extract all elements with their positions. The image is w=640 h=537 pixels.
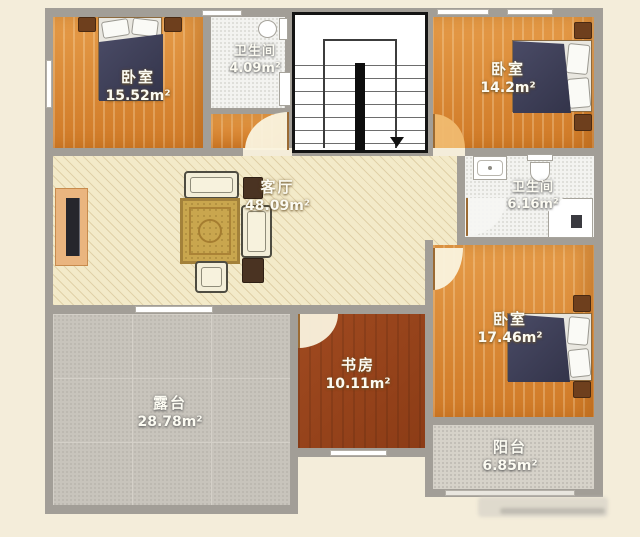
room-name: 客厅: [260, 178, 294, 198]
room-area: 14.2m²: [480, 80, 535, 98]
sink-drain: [488, 166, 492, 170]
window-top-bathroom: [202, 10, 242, 16]
room-name: 卧室: [121, 68, 155, 88]
label-balcony: 阳台 6.85m²: [462, 438, 558, 475]
pillow-icon: [565, 43, 590, 75]
nightstand-icon: [573, 295, 591, 312]
stair-center-bar: [355, 63, 365, 150]
room-area: 15.52m²: [105, 88, 170, 106]
toilet-bowl: [530, 162, 550, 182]
armchair-icon: [195, 261, 228, 293]
wall-study-left: [290, 314, 298, 505]
label-bathroom-top: 卫生间 4.09m²: [207, 44, 303, 77]
room-area: 17.46m²: [477, 330, 542, 348]
pillow-icon: [567, 316, 590, 346]
room-name: 阳台: [493, 438, 527, 458]
room-area: 4.09m²: [229, 61, 280, 77]
room-name: 书房: [341, 356, 375, 376]
tv-icon: [66, 198, 79, 256]
toilet-tank: [279, 18, 288, 40]
nightstand-icon: [574, 22, 592, 39]
wall-living-bottom: [45, 305, 433, 314]
window-top-bedroom-1: [437, 9, 489, 15]
toilet-bowl: [258, 20, 277, 38]
label-bedroom-top-left: 卧室 15.52m²: [78, 68, 198, 105]
label-bedroom-bottom-right: 卧室 17.46m²: [460, 310, 560, 347]
room-area: 48.09m²: [245, 198, 310, 216]
watermark: [478, 497, 608, 517]
toilet-icon: [258, 18, 288, 40]
room-name: 卫生间: [234, 44, 276, 61]
label-study: 书房 10.11m²: [308, 356, 408, 393]
watermark-text-blur: [500, 508, 605, 514]
window-balcony-rail: [445, 490, 575, 496]
room-name: 卧室: [493, 310, 527, 330]
room-name: 卧室: [491, 60, 525, 80]
arrow-down-icon: [390, 137, 404, 147]
window-top-bedroom-2: [507, 9, 553, 15]
sofa-seat: [190, 177, 233, 193]
shower-knob: [571, 215, 582, 228]
window-left-bedroom: [46, 60, 52, 108]
label-bedroom-top-right: 卧室 14.2m²: [458, 60, 558, 97]
wall-outer-right: [594, 8, 603, 497]
rug-medallion: [198, 219, 222, 243]
room-area: 6.16m²: [507, 197, 558, 213]
toilet-icon: [527, 154, 553, 182]
toilet-tank: [527, 154, 553, 161]
wall-bedroom-bath: [203, 17, 211, 148]
wall-balcony-top: [433, 417, 594, 425]
wall-bathroom-right-bottom: [457, 237, 603, 245]
nightstand-icon: [78, 17, 96, 32]
pillow-icon: [567, 77, 592, 109]
pillow-icon: [131, 17, 159, 37]
sofa-seat: [247, 211, 266, 252]
window-terrace-door: [135, 306, 213, 313]
sink-icon: [473, 156, 507, 180]
wall-bedroom-br-left: [425, 240, 433, 497]
room-area: 28.78m²: [137, 414, 202, 432]
floor-plan: 卧室 15.52m² 卫生间 4.09m² 卧室 14.2m² 卫生间 6.16…: [0, 0, 640, 537]
wall-terrace-bottom: [45, 505, 298, 514]
wall-bathroom-right-left: [457, 156, 465, 245]
nightstand-icon: [573, 381, 591, 398]
room-name: 露台: [153, 394, 187, 414]
wall-living-top-left: [45, 148, 243, 156]
pillow-icon: [568, 348, 592, 378]
side-table-icon: [242, 258, 264, 283]
staircase: [292, 12, 428, 153]
room-area: 10.11m²: [325, 376, 390, 394]
window-study: [330, 450, 387, 456]
label-bathroom-right: 卫生间 6.16m²: [478, 180, 588, 213]
room-name: 卫生间: [512, 180, 554, 197]
nightstand-icon: [164, 17, 182, 32]
pillow-icon: [101, 18, 130, 39]
nightstand-icon: [574, 114, 592, 131]
room-area: 6.85m²: [482, 458, 537, 476]
label-living-room: 客厅 48.09m²: [230, 178, 325, 215]
sofa-seat: [201, 267, 222, 287]
label-terrace: 露台 28.78m²: [120, 394, 220, 431]
